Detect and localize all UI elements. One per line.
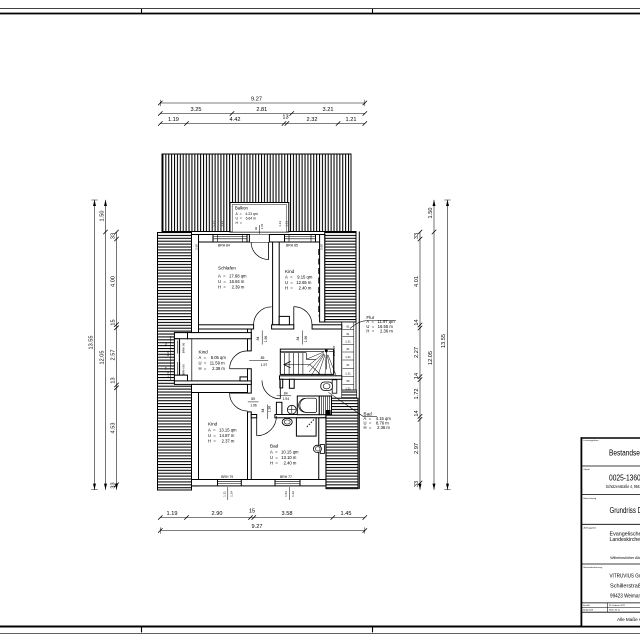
svg-text:2.57: 2.57	[111, 350, 117, 361]
svg-text:1.21: 1.21	[346, 117, 357, 123]
svg-text:1.22: 1.22	[291, 491, 295, 497]
svg-text:1.01: 1.01	[260, 223, 264, 229]
svg-text:56: 56	[346, 379, 350, 383]
svg-text:77: 77	[164, 367, 168, 371]
svg-text:1.24: 1.24	[230, 491, 234, 497]
svg-text:15: 15	[249, 509, 255, 515]
svg-text:1.19: 1.19	[168, 117, 179, 123]
svg-text:61: 61	[346, 332, 350, 336]
svg-text:Schützenstraße 4, 99423 Weimar: Schützenstraße 4, 99423 Weimar	[606, 484, 640, 489]
svg-text:1.21: 1.21	[345, 372, 351, 376]
svg-text:BRH 96: BRH 96	[332, 345, 336, 356]
svg-text:1.50: 1.50	[428, 208, 434, 219]
svg-text:3.58: 3.58	[282, 511, 293, 517]
svg-text:2.81: 2.81	[256, 107, 267, 113]
svg-text:12.05: 12.05	[99, 351, 105, 365]
svg-text:H = 2.40 m: H = 2.40 m	[285, 286, 312, 291]
svg-text:BRH 84: BRH 84	[218, 244, 230, 248]
svg-text:A = 10.15 qm: A = 10.15 qm	[270, 450, 299, 455]
svg-text:BRH 85: BRH 85	[286, 244, 298, 248]
svg-text:Bezeichnung: Bezeichnung	[584, 498, 597, 500]
svg-text:Schlafen: Schlafen	[218, 266, 236, 271]
svg-text:BRH 77: BRH 77	[280, 475, 292, 479]
svg-text:U = 13.10 m: U = 13.10 m	[270, 455, 297, 460]
svg-text:84: 84	[284, 392, 288, 396]
svg-text:13: 13	[111, 377, 117, 383]
svg-text:1.21: 1.21	[220, 221, 224, 227]
svg-text:9.27: 9.27	[252, 524, 263, 530]
svg-text:A = 8.05 qm: A = 8.05 qm	[199, 355, 227, 360]
svg-text:2.27: 2.27	[414, 347, 420, 358]
svg-text:Bad: Bad	[270, 444, 279, 449]
svg-text:A = 13.15 qm: A = 13.15 qm	[208, 428, 237, 433]
svg-text:99423 Weimar: 99423 Weimar	[610, 593, 640, 599]
svg-text:1.21: 1.21	[166, 372, 170, 378]
svg-text:14: 14	[414, 373, 420, 379]
svg-text:Leistungsphase: Leistungsphase	[583, 439, 599, 442]
svg-text:4.01: 4.01	[414, 276, 420, 287]
svg-text:1.96: 1.96	[264, 336, 268, 343]
svg-text:85: 85	[251, 397, 255, 401]
svg-text:Erstellt: Erstellt	[583, 604, 590, 607]
svg-text:VITRUVIUS GmbH: VITRUVIUS GmbH	[610, 574, 640, 580]
svg-text:Balkon: Balkon	[235, 206, 248, 211]
svg-text:A = 9.15 qm: A = 9.15 qm	[285, 275, 313, 280]
svg-text:1.50: 1.50	[99, 211, 105, 222]
svg-text:1.13: 1.13	[278, 221, 282, 227]
svg-text:1.21: 1.21	[345, 339, 351, 343]
svg-text:Kind: Kind	[199, 350, 209, 355]
svg-text:Kind: Kind	[285, 269, 295, 274]
svg-text:3.21: 3.21	[323, 107, 334, 113]
svg-text:61: 61	[346, 347, 350, 351]
svg-text:1.97: 1.97	[261, 363, 268, 367]
svg-text:U = 12.65 m: U = 12.65 m	[285, 280, 312, 285]
svg-text:U = 16.84 m: U = 16.84 m	[218, 279, 245, 284]
svg-text:A = 17.68 qm: A = 17.68 qm	[218, 274, 247, 279]
svg-text:BRH 96: BRH 96	[181, 342, 185, 353]
svg-text:2.90: 2.90	[212, 511, 223, 517]
svg-text:1.11: 1.11	[222, 491, 226, 497]
svg-text:2.60: 2.60	[319, 244, 323, 250]
svg-text:33: 33	[414, 481, 420, 487]
svg-text:1.72: 1.72	[414, 389, 420, 400]
svg-text:BRH 96: BRH 96	[181, 364, 185, 375]
svg-text:1.21: 1.21	[345, 355, 351, 359]
svg-text:H =: H =	[236, 221, 242, 225]
svg-text:14: 14	[414, 410, 420, 416]
svg-text:05. Februar 2011: 05. Februar 2011	[609, 604, 626, 607]
svg-text:0025-1360-001: 0025-1360-001	[609, 474, 640, 483]
svg-text:84: 84	[256, 337, 260, 341]
svg-text:H = 2.36 m: H = 2.36 m	[366, 329, 393, 334]
svg-text:12.05: 12.05	[428, 351, 434, 365]
svg-text:13: 13	[282, 115, 288, 121]
svg-text:9.27: 9.27	[251, 97, 262, 103]
svg-text:Alle Maße sind: Alle Maße sind	[617, 617, 640, 622]
svg-text:2.97: 2.97	[414, 443, 420, 454]
svg-text:U = 11.59 m: U = 11.59 m	[199, 361, 226, 366]
svg-text:H = 2.38 m: H = 2.38 m	[199, 366, 226, 371]
svg-text:84: 84	[296, 337, 300, 341]
svg-text:1.19: 1.19	[167, 511, 178, 517]
svg-text:Grundriss Dachgeschoss: Grundriss Dachgeschoss	[610, 506, 640, 515]
svg-text:Wilhelmshöher Allee 330: Wilhelmshöher Allee 330	[610, 555, 640, 560]
svg-text:84: 84	[261, 409, 265, 413]
svg-text:76: 76	[164, 343, 168, 347]
svg-text:1.21: 1.21	[166, 350, 170, 356]
svg-text:3.25: 3.25	[191, 107, 202, 113]
svg-text:61: 61	[346, 363, 350, 367]
svg-text:2.32: 2.32	[307, 117, 318, 123]
svg-text:H = 2.39 m: H = 2.39 m	[218, 285, 245, 290]
svg-text:33: 33	[111, 233, 117, 239]
svg-text:1.94: 1.94	[282, 397, 289, 401]
svg-text:Kind: Kind	[208, 422, 218, 427]
svg-text:1.21: 1.21	[285, 221, 289, 227]
svg-text:Auftraggeber: Auftraggeber	[584, 527, 597, 530]
svg-text:1.45: 1.45	[341, 511, 352, 517]
svg-text:Bestandserfassung: Bestandserfassung	[584, 566, 604, 569]
svg-text:H = 2.36 m: H = 2.36 m	[364, 425, 391, 430]
svg-text:92: 92	[254, 227, 258, 231]
svg-text:1.96: 1.96	[268, 406, 272, 413]
svg-text:1.13: 1.13	[213, 221, 217, 227]
svg-text:15: 15	[111, 319, 117, 325]
svg-text:A = 4.23 qm: A = 4.23 qm	[236, 212, 258, 216]
svg-text:2.60: 2.60	[195, 244, 199, 250]
svg-text:1.53: 1.53	[284, 491, 288, 497]
svg-text:U = 6.64 m: U = 6.64 m	[236, 216, 257, 220]
svg-text:BRH 79: BRH 79	[221, 475, 233, 479]
svg-text:U = 14.87 m: U = 14.87 m	[208, 433, 235, 438]
svg-text:H = 2.37 m: H = 2.37 m	[208, 439, 235, 444]
svg-text:Bestandserfassung: Bestandserfassung	[609, 449, 640, 458]
svg-text:1.21: 1.21	[345, 387, 351, 391]
svg-text:4.42: 4.42	[230, 117, 241, 123]
svg-text:1.96: 1.96	[304, 336, 308, 343]
svg-text:14: 14	[414, 319, 420, 325]
svg-text:Landeskirchenamt Kassel: Landeskirchenamt Kassel	[610, 537, 640, 543]
svg-text:33: 33	[414, 233, 420, 239]
svg-text:Aufgestellt: Aufgestellt	[583, 609, 593, 612]
svg-text:61: 61	[346, 324, 350, 328]
svg-text:Schillerstraße 12: Schillerstraße 12	[610, 584, 640, 590]
svg-text:Weim 30.11: Weim 30.11	[609, 610, 621, 612]
svg-text:85: 85	[261, 356, 265, 360]
svg-text:4.53: 4.53	[111, 423, 117, 434]
svg-text:Objekt: Objekt	[583, 468, 590, 471]
svg-text:4.00: 4.00	[111, 276, 117, 287]
svg-text:13.55: 13.55	[88, 336, 94, 350]
svg-text:H = 2.40 m: H = 2.40 m	[270, 461, 297, 466]
svg-text:33: 33	[111, 482, 117, 488]
svg-text:1.96: 1.96	[250, 404, 257, 408]
svg-text:13.55: 13.55	[441, 334, 447, 348]
